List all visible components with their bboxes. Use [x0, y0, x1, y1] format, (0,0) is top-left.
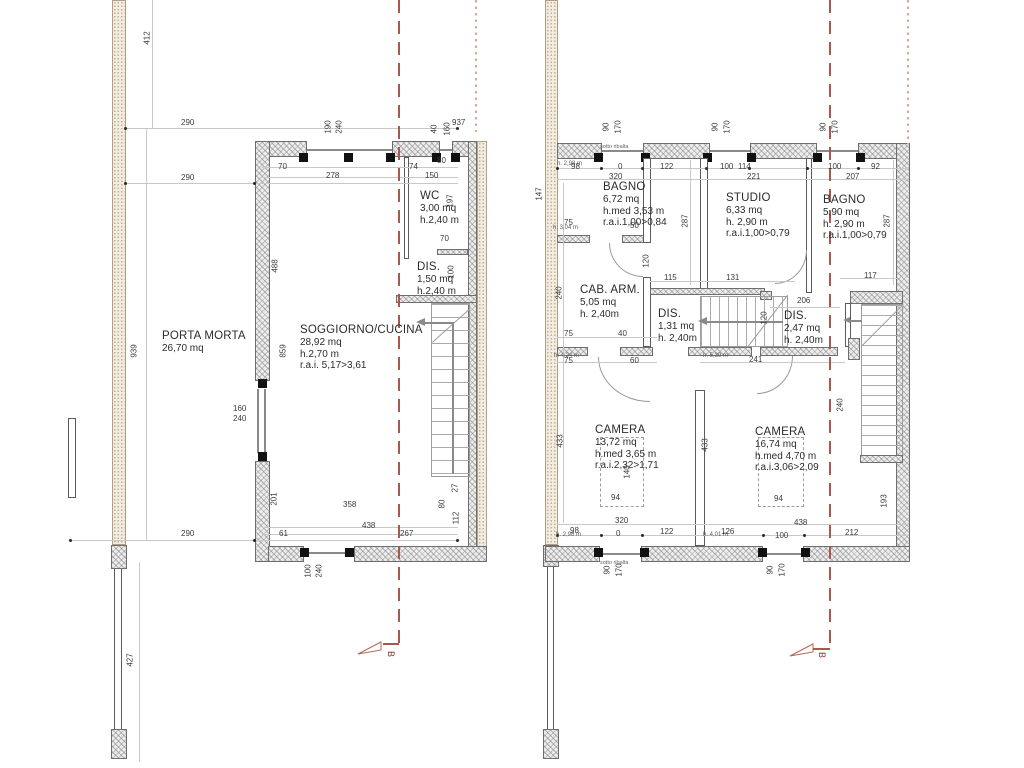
room-height: h.med 3,65 m: [595, 449, 659, 461]
dim-label: h. 5,39 m: [703, 353, 728, 359]
dim-label: 120: [761, 311, 769, 324]
dim-label: 94: [611, 494, 620, 502]
dim-label: 206: [797, 297, 810, 305]
plan-first-floor: B sotto ribalta sotto ribalta BAGNO 6,72…: [0, 0, 1024, 768]
dim-label: 122: [660, 528, 673, 536]
room-area: 2,47 mq: [784, 323, 823, 335]
dim-label: 170: [616, 563, 624, 576]
boundary-dotted-line: [907, 0, 909, 144]
partition-wall: [760, 347, 838, 356]
dim-label: 438: [794, 519, 807, 527]
dim-label: 98: [570, 527, 579, 535]
dim-label: 170: [832, 120, 840, 133]
section-letter: B: [817, 652, 827, 658]
dimension-dot: [641, 534, 644, 537]
room-label-studio: STUDIO 6,33 mq h. 2,90 m r.a.i.1,00>0,79: [726, 192, 790, 240]
dimension-dot: [705, 167, 708, 170]
partition-wall: [557, 235, 590, 243]
annotation-sotto-ribalta: sotto ribalta: [600, 145, 628, 151]
room-label-dis-1: DIS. 1,31 mq h. 2,40m: [658, 308, 697, 344]
dim-label: 126: [721, 528, 734, 536]
stairs-direction-line: [850, 320, 862, 322]
dim-label: 98: [571, 163, 580, 171]
dim-label: 287: [884, 214, 892, 227]
room-height: h. 2,40m: [784, 335, 823, 347]
room-rai: r.a.i.1,00>0,79: [823, 230, 887, 242]
room-name: DIS.: [658, 308, 697, 321]
pillar: [856, 153, 865, 162]
dim-label: 90: [711, 123, 719, 132]
room-name: BAGNO: [603, 181, 667, 194]
room-area: 6,33 mq: [726, 205, 790, 217]
partition-wall: [620, 347, 653, 356]
dim-label: 75: [564, 357, 573, 365]
room-height: h.med 4,70 m: [755, 451, 819, 463]
dim-label: 240: [837, 398, 845, 411]
dim-label: 100: [828, 163, 841, 171]
stairs-arrow-icon: [698, 317, 707, 325]
partition-wall: [848, 338, 860, 360]
room-area: 13,72 mq: [595, 437, 659, 449]
stairs-arrow-icon: [843, 317, 850, 323]
room-height: h.med 3,53 m: [603, 206, 667, 218]
dimension-dot: [600, 167, 603, 170]
partition-wall: [860, 455, 903, 463]
room-name: DIS.: [784, 310, 823, 323]
dim-label: 75: [564, 219, 573, 227]
partition-wall: [695, 390, 705, 546]
dim-label: 433: [557, 434, 565, 447]
section-arrow-icon: [788, 642, 814, 659]
room-label-cab-arm: CAB. ARM. 5,05 mq h. 2,40m: [580, 284, 640, 320]
dim-label: 170: [724, 120, 732, 133]
dim-label: 90: [602, 123, 610, 132]
window-opening: [817, 150, 858, 152]
dim-label: 40: [618, 330, 627, 338]
dim-label: 433: [702, 438, 710, 451]
dimension-dot: [556, 167, 559, 170]
boundary-wall: [547, 567, 554, 729]
dim-label: 287: [682, 214, 690, 227]
window-opening: [763, 553, 803, 555]
partition-wall: [850, 291, 903, 304]
room-area: 6,72 mq: [603, 194, 667, 206]
dim-label: 193: [881, 494, 889, 507]
partition-wall: [700, 158, 708, 290]
pillar: [813, 153, 822, 162]
wall: [750, 143, 817, 159]
dim-label: 92: [871, 163, 880, 171]
dim-label: 0: [618, 163, 622, 171]
wall: [803, 546, 910, 562]
floor-plan-canvas: B PORTA MORTA 26,70 mq SOGGIORNO/CUCINA …: [0, 0, 1024, 768]
room-area: 1,31 mq: [658, 321, 697, 333]
pillar: [594, 548, 603, 557]
door-arc: [775, 250, 807, 284]
dim-label: 117: [864, 272, 877, 280]
room-name: CAB. ARM.: [580, 284, 640, 297]
dim-label: 320: [615, 517, 628, 525]
dim-label: 207: [846, 173, 859, 181]
room-rai: r.a.i.3,06>2,09: [755, 462, 819, 474]
room-height: h. 2,40m: [658, 333, 697, 345]
pillar: [747, 153, 756, 162]
room-rai: r.a.i.1,00>0,79: [726, 228, 790, 240]
section-line-b: [813, 648, 830, 650]
dim-label: 241: [749, 356, 762, 364]
dim-label: 122: [660, 163, 673, 171]
dim-label: 147: [536, 187, 544, 200]
dim-label: 50: [630, 222, 639, 230]
room-name: CAMERA: [595, 424, 659, 437]
pillar: [758, 548, 767, 557]
room-height: h. 2,90 m: [823, 219, 887, 231]
dim-label: 170: [779, 563, 787, 576]
dim-label: 90: [766, 566, 774, 575]
room-name: BAGNO: [823, 194, 887, 207]
dim-label: 114: [738, 163, 751, 171]
dim-label: 320: [609, 173, 622, 181]
pillar: [640, 548, 649, 557]
wall: [543, 729, 559, 759]
neighbor-wall: [545, 0, 558, 545]
dimension-dot: [600, 534, 603, 537]
dim-label: 100: [720, 163, 733, 171]
door-arc: [609, 243, 643, 277]
door-arc: [598, 357, 650, 402]
dim-label: 0: [616, 530, 620, 538]
dim-label: 221: [747, 173, 760, 181]
dimension-line: [557, 524, 909, 525]
room-name: STUDIO: [726, 192, 790, 205]
dim-label: 60: [630, 357, 639, 365]
dim-label: 90: [603, 566, 611, 575]
dim-label: 131: [726, 274, 739, 282]
section-line-b: [829, 0, 831, 648]
dimension-dot: [641, 167, 644, 170]
dim-label: 94: [774, 495, 783, 503]
dimension-line: [700, 362, 845, 363]
room-area: 16,74 mq: [755, 439, 819, 451]
wall: [641, 546, 763, 562]
room-area: 5,90 mq: [823, 207, 887, 219]
dim-label: 120: [643, 254, 651, 267]
dimension-dot: [857, 167, 860, 170]
room-name: CAMERA: [755, 426, 819, 439]
dimension-line: [690, 160, 691, 285]
room-area: 5,05 mq: [580, 297, 640, 309]
window-opening: [600, 553, 641, 555]
dimension-line: [893, 160, 894, 285]
wall: [643, 143, 710, 159]
dim-label: 100: [775, 532, 788, 540]
dim-label: 170: [615, 120, 623, 133]
window-opening: [710, 150, 750, 152]
pillar: [594, 153, 603, 162]
stairs-direction-line: [707, 321, 783, 323]
dim-label: 90: [819, 123, 827, 132]
dimension-dot: [762, 534, 765, 537]
dim-label: 212: [845, 529, 858, 537]
partition-wall: [650, 288, 765, 295]
room-height: h. 2,40m: [580, 309, 640, 321]
dim-label: 240: [556, 286, 564, 299]
dim-label: 75: [564, 330, 573, 338]
dimension-dot: [806, 167, 809, 170]
room-label-camera-2: CAMERA 16,74 mq h.med 4,70 m r.a.i.3,06>…: [755, 426, 819, 474]
room-height: h. 2,90 m: [726, 217, 790, 229]
room-label-dis-2: DIS. 2,47 mq h. 2,40m: [784, 310, 823, 346]
room-label-bagno-2: BAGNO 5,90 mq h. 2,90 m r.a.i.1,00>0,79: [823, 194, 887, 242]
dim-label: 115: [664, 274, 677, 282]
dim-label: 140: [624, 465, 632, 478]
wall: [545, 546, 600, 562]
dimension-dot: [803, 534, 806, 537]
pillar: [801, 548, 810, 557]
stairs: [861, 304, 903, 456]
